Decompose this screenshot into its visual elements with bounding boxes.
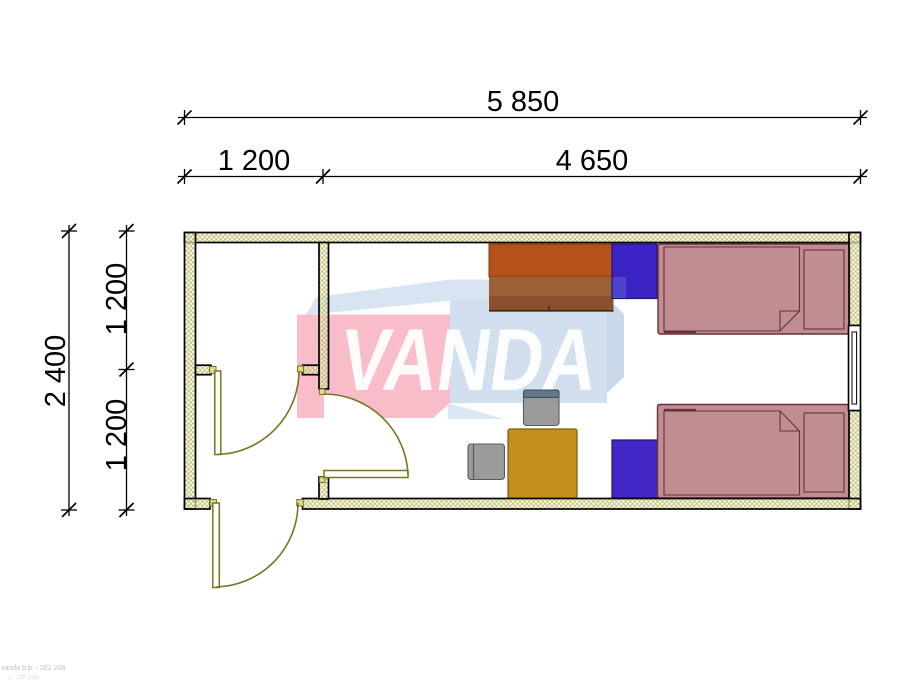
svg-text:5 850: 5 850 — [487, 86, 560, 118]
svg-text:1 200: 1 200 — [101, 399, 133, 472]
svg-text:VANDA: VANDA — [334, 310, 604, 409]
svg-text:vanda b.b. - 201 208: vanda b.b. - 201 208 — [1, 665, 65, 672]
svg-text:2 400: 2 400 — [40, 335, 72, 408]
svg-text:1 200: 1 200 — [101, 263, 133, 336]
svg-text:4 650: 4 650 — [556, 145, 629, 177]
svg-text:1 200: 1 200 — [218, 145, 291, 177]
svg-text:1 : 100 plan: 1 : 100 plan — [8, 675, 39, 681]
